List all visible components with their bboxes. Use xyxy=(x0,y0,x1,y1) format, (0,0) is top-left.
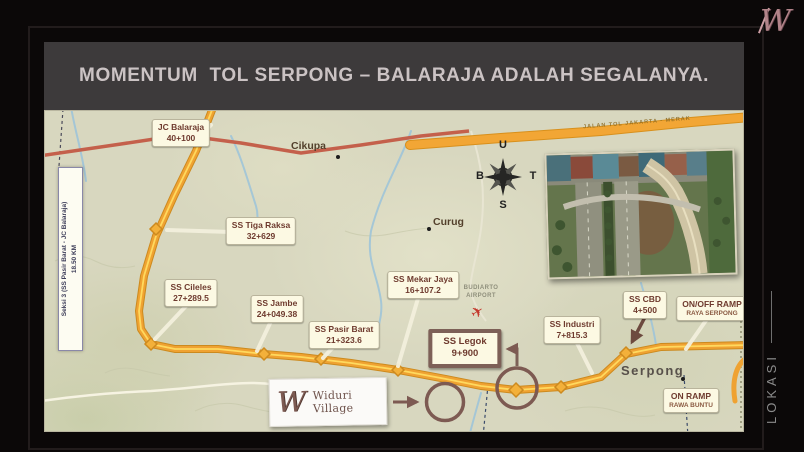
leader-line xyxy=(575,339,592,373)
legok-arrow xyxy=(508,349,517,366)
slide-title-bar: MOMENTUM TOL SERPONG – BALARAJA ADALAH S… xyxy=(44,42,744,110)
boundary-line xyxy=(59,111,63,166)
river xyxy=(469,393,481,432)
site-location-circle xyxy=(427,384,464,421)
callout-ss-industri: SS Industri 7+815.3 xyxy=(544,316,601,344)
callout-ss-cileles: SS Cileles 27+289.5 xyxy=(164,279,217,307)
leader-line xyxy=(155,305,187,339)
town-dot xyxy=(427,227,431,231)
compass-rose-icon xyxy=(484,158,522,196)
compass-north-label: U xyxy=(496,139,510,151)
leader-line xyxy=(398,295,419,366)
town-dot xyxy=(336,155,340,159)
town-dot xyxy=(681,377,685,381)
terrain-contour xyxy=(105,368,170,376)
boundary-line xyxy=(483,385,488,432)
lokasi-rule xyxy=(771,291,772,343)
town-label-serpong: Serpong xyxy=(621,363,684,378)
terrain-contour xyxy=(565,407,655,416)
compass-south-label: S xyxy=(496,199,510,211)
callout-ss-jambe: SS Jambe 24+049.38 xyxy=(251,295,304,323)
callout-ss-tiga-raksa: SS Tiga Raksa 32+629 xyxy=(226,217,296,245)
leader-line xyxy=(167,230,231,232)
slide-root: W MOMENTUM TOL SERPONG – BALARAJA ADALAH… xyxy=(0,0,804,452)
callout-ss-pasir-barat: SS Pasir Barat 21+323.6 xyxy=(309,321,380,349)
callout-ss-cbd: SS CBD 4+500 xyxy=(623,291,667,319)
cbd-pointer-arrow xyxy=(632,317,645,342)
callout-ss-mekar-jaya: SS Mekar Jaya 16+107.2 xyxy=(387,271,459,299)
section-banner-line2: 18.50 KM xyxy=(70,168,80,350)
callout-ss-legok: SS Legok 9+900 xyxy=(428,329,501,368)
slide-title: MOMENTUM TOL SERPONG – BALARAJA ADALAH S… xyxy=(79,65,709,87)
lokasi-side-caption: LOKASI xyxy=(764,291,779,424)
brand-monogram-icon: W xyxy=(760,4,791,39)
terrain-contour xyxy=(345,228,430,236)
town-label-cikupa: Cikupa xyxy=(291,140,326,152)
brand-logo: W xyxy=(752,0,798,50)
lokasi-label: LOKASI xyxy=(764,353,779,424)
airport-label: BUDIARTO AIRPORT xyxy=(459,285,503,300)
site-marker-card: W Widuri Village xyxy=(269,377,388,427)
card-label: Widuri Village xyxy=(313,388,380,415)
town-label-curug: Curug xyxy=(433,216,464,228)
interchange-photo-inset xyxy=(544,149,737,280)
leader-line xyxy=(257,319,272,351)
river xyxy=(370,131,411,343)
callout-on-ramp: ON RAMP RAWA BUNTU xyxy=(663,388,719,413)
compass-east-label: T xyxy=(526,170,540,182)
map-panel: JALAN TOL JAKARTA - MERAK Seksi 3 (SS Pa… xyxy=(44,110,744,432)
compass-west-label: B xyxy=(473,170,487,182)
callout-jc-balaraja: JC Balaraja 40+100 xyxy=(152,119,210,147)
card-monogram-icon: W xyxy=(277,388,306,416)
callout-onoff-ramp: ON/OFF RAMP RAYA SERPONG xyxy=(676,296,744,321)
aerial-photo-graphic xyxy=(546,151,735,278)
section-banner-line1: Seksi 3 (SS Pasir Barat - JC Balaraja) xyxy=(60,168,70,350)
section-banner: Seksi 3 (SS Pasir Barat - JC Balaraja) 1… xyxy=(58,167,83,351)
